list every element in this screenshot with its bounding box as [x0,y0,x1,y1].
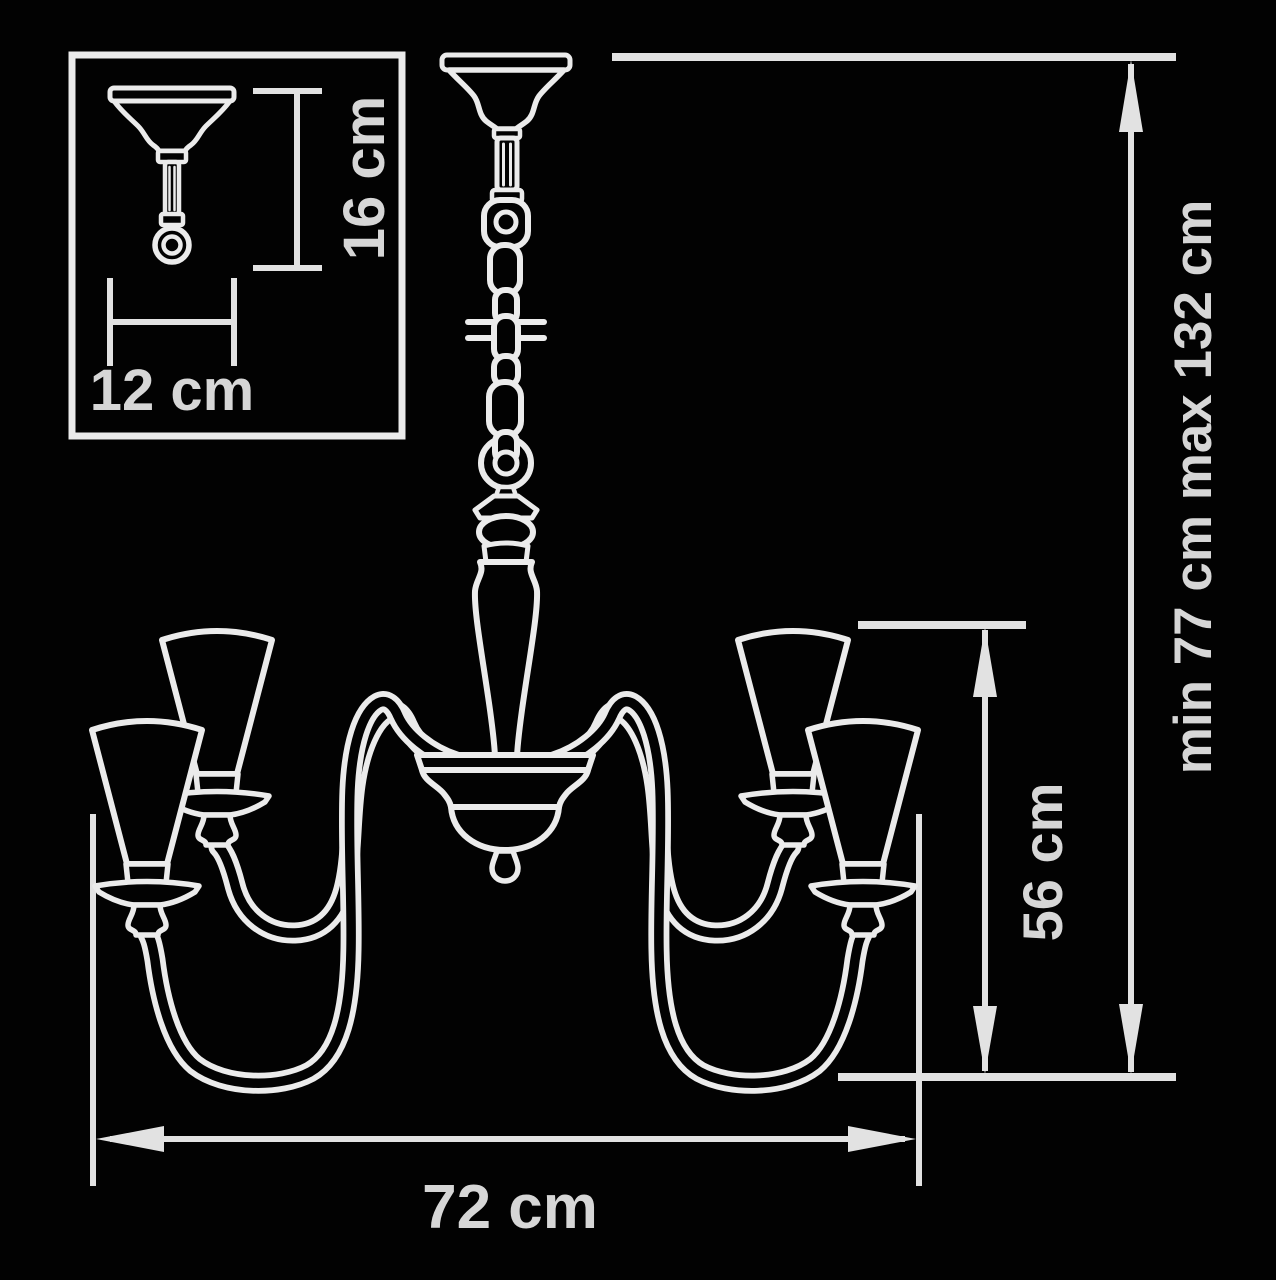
inset-mount-detail: 16 cm 12 cm [72,55,402,436]
arrow-up-icon [973,627,997,697]
suspension-rod [497,138,517,190]
hook-ring-inner [164,237,181,254]
width-label: 72 cm [422,1173,598,1242]
shade-front-right [808,721,918,935]
hanging-ball-ring [495,452,517,474]
center-bowl [417,755,593,881]
chandelier-dimension-diagram: min 77 cm max 132 cm 56 cm 72 cm [0,0,1276,1280]
body-height-label: 56 cm [1011,783,1074,942]
arrow-down-icon [1119,1004,1143,1074]
arrow-right-icon [848,1126,916,1152]
stem-bottom-flange [161,214,183,225]
ceiling-canopy [449,70,564,129]
overall-height-label: min 77 cm max 132 cm [1164,200,1223,775]
shade-cone [92,721,202,864]
arrow-down-icon [973,1006,997,1074]
cup-neck [198,815,236,845]
dim-mount-height: 16 cm [253,91,397,268]
cup-neck [128,905,166,935]
swivel-eye [496,212,516,232]
mount-canopy-drawing [110,88,234,262]
chain-suspension [442,55,570,488]
bowl-lower [451,807,559,850]
baluster-stem [475,487,537,759]
shade-front-left [92,721,202,935]
bowl-upper [422,770,588,807]
bobeche-saucer [811,882,915,906]
baluster-taper [475,562,537,759]
dim-body-height: 56 cm [858,625,1074,1074]
mount-height-label: 16 cm [332,96,397,260]
dim-mount-width: 12 cm [90,278,254,423]
arrow-up-icon [1119,60,1143,132]
chain-link [490,245,520,294]
stem-rod [165,162,179,215]
bobeche-saucer [95,882,199,906]
cup-neck [774,815,812,845]
arrow-left-icon [96,1126,164,1152]
chain-link [489,382,521,436]
cup-neck [844,905,882,935]
mount-width-label: 12 cm [90,358,254,423]
bowl-knob [492,851,518,881]
shade-cone [808,721,918,864]
canopy-bell [114,101,230,151]
